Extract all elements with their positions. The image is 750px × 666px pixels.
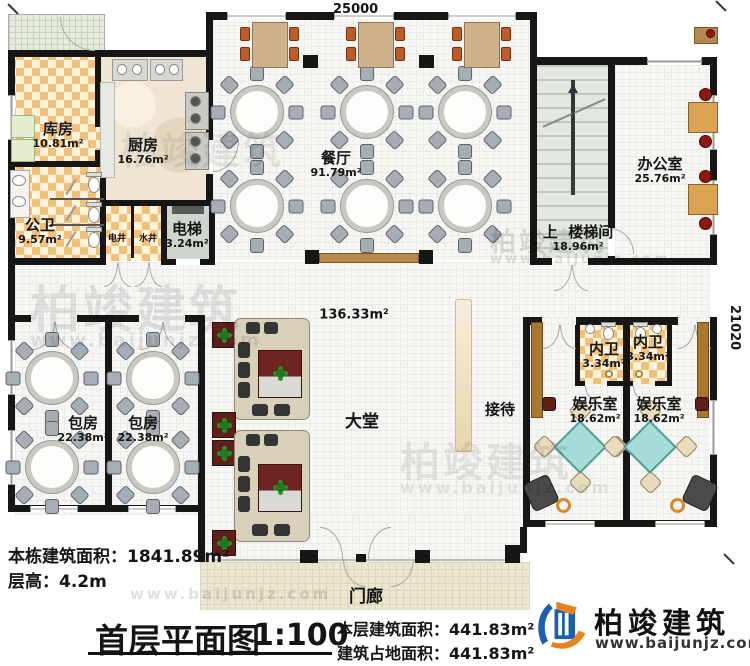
shelf-icon	[11, 139, 35, 162]
wall	[206, 174, 213, 202]
office-chair-icon	[699, 88, 712, 101]
burner-icon	[190, 113, 201, 124]
stat-label: 本层建筑面积：	[337, 620, 449, 639]
column	[419, 55, 434, 68]
room-area: 3.34m²	[626, 351, 669, 364]
wall	[8, 315, 31, 322]
chair-icon	[250, 144, 264, 159]
dimension-value: 21020	[727, 305, 742, 350]
chair-icon	[419, 199, 434, 213]
chair-icon	[395, 27, 405, 41]
room-area: 3.34m²	[582, 358, 625, 371]
dimension-top: 25000	[333, 2, 378, 17]
room-name: 内卫	[582, 341, 625, 358]
room-name: 电井	[108, 234, 126, 244]
title-underline	[88, 652, 332, 655]
round-dining-table	[127, 352, 179, 404]
title-scale: 1:100	[253, 618, 349, 653]
sofa-cushion	[252, 404, 268, 416]
sink-icon	[12, 196, 26, 207]
stats-building-total: 本栋建筑面积：1841.89m²	[8, 542, 230, 567]
brand-url: www.baijunjz.com	[595, 634, 750, 652]
stair-up-arrow	[572, 92, 574, 152]
stat-label: 建筑占地面积：	[337, 644, 449, 663]
toilet-icon	[603, 327, 614, 340]
brand-logo-icon	[534, 598, 590, 654]
round-dining-table	[231, 180, 283, 232]
elevator-opening	[176, 259, 200, 265]
kitchen-counter	[100, 82, 115, 178]
plant-icon	[220, 421, 229, 430]
room-name: 娱乐室	[569, 396, 620, 413]
room-label-lobby: 大堂	[345, 413, 379, 433]
sofa-cushion	[238, 382, 250, 398]
room-area: 18.62m²	[569, 413, 620, 426]
room-area: 9.57m²	[18, 234, 61, 247]
chair-icon	[240, 27, 250, 41]
chair-icon	[211, 105, 226, 119]
room-label-stairwell: 上 楼梯间 18.96m²	[543, 224, 613, 254]
chair-icon	[399, 199, 414, 213]
stats-floor-area: 本层建筑面积：441.83m²	[337, 616, 534, 640]
room-label-storage: 库房 10.81m²	[32, 121, 83, 151]
rect-table	[358, 22, 394, 68]
stat-label: 本栋建筑面积：	[8, 547, 127, 567]
dimension-tick	[715, 0, 726, 11]
sofa-cushion	[264, 322, 278, 334]
stat-value: 441.83m²	[449, 644, 534, 663]
wall	[100, 167, 106, 265]
room-label-electric-shaft: 电井	[108, 234, 126, 244]
window	[647, 58, 702, 65]
stat-value: 441.83m²	[449, 620, 534, 639]
sofa-cushion	[238, 496, 250, 512]
chair-icon	[289, 105, 304, 119]
wall	[520, 527, 527, 553]
room-label-water-shaft: 水井	[139, 234, 157, 244]
floor-lamp-icon	[670, 498, 685, 513]
stair-up-label: 上	[543, 223, 558, 241]
chair-icon	[45, 499, 59, 514]
room-area: 91.79m²	[310, 167, 361, 180]
window	[545, 521, 595, 527]
column	[303, 55, 318, 68]
room-area: 22.38m²	[117, 432, 168, 445]
chair-icon	[289, 27, 299, 41]
plant-icon	[220, 331, 229, 340]
room-name: 包房	[57, 415, 108, 432]
dimension-value: 25000	[333, 2, 378, 17]
chair-icon	[458, 144, 472, 159]
round-dining-table	[26, 352, 78, 404]
office-chair-icon	[699, 170, 712, 183]
toilet-icon	[88, 207, 100, 223]
wall	[286, 12, 334, 20]
wall	[77, 315, 139, 322]
room-label-inner-wc-2: 内卫 3.34m²	[626, 334, 669, 364]
chair-icon	[45, 332, 59, 347]
room-label-kitchen: 厨房 16.76m²	[117, 137, 168, 167]
wall	[575, 381, 585, 386]
plant-icon	[276, 483, 285, 492]
wall	[8, 50, 213, 57]
round-dining-table	[127, 441, 179, 493]
sofa-cushion	[274, 524, 290, 536]
room-name: 公卫	[18, 217, 61, 234]
chair-icon	[399, 105, 414, 119]
floor-lamp-icon	[556, 498, 571, 513]
room-label-private-2: 包房 22.38m²	[117, 415, 168, 445]
round-dining-table	[439, 86, 491, 138]
toilet-icon	[88, 232, 100, 248]
round-dining-table	[341, 86, 393, 138]
room-area: 18.96m²	[543, 241, 613, 254]
sink-icon	[12, 175, 26, 186]
office-chair-icon	[706, 29, 715, 38]
column	[300, 550, 318, 563]
room-label-reception: 接待	[485, 401, 515, 418]
office-chair-icon	[699, 135, 712, 148]
room-area: 25.76m²	[634, 173, 685, 186]
chair-icon	[185, 371, 200, 385]
sofa-cushion	[246, 434, 260, 446]
stall-divider	[50, 198, 104, 200]
room-label-inner-wc-1: 内卫 3.34m²	[582, 341, 625, 371]
column	[415, 550, 430, 563]
chair-icon	[250, 160, 264, 175]
room-area: 3.24m²	[165, 238, 208, 251]
round-dining-table	[439, 180, 491, 232]
burner-icon	[190, 96, 201, 107]
wall	[213, 12, 227, 20]
brand-url-text: www.baijunjz.com	[595, 634, 750, 652]
wall	[608, 65, 615, 228]
chair-icon	[84, 371, 99, 385]
chair-icon	[360, 238, 374, 253]
room-name: 包房	[117, 415, 168, 432]
chair-icon	[321, 105, 336, 119]
room-label-porch: 门廊	[349, 588, 383, 608]
window	[8, 340, 15, 395]
shelf-icon	[11, 115, 35, 138]
chair-icon	[107, 371, 122, 385]
room-label-dining: 餐厅 91.79m²	[310, 150, 361, 180]
wall	[8, 258, 104, 265]
room-label-entertainment-2: 娱乐室 18.62m²	[633, 396, 684, 426]
room-name: 大堂	[345, 412, 379, 432]
sofa-cushion	[246, 322, 260, 334]
chair-icon	[185, 460, 200, 474]
window	[227, 13, 286, 19]
side-table	[542, 397, 556, 411]
plant-icon	[220, 449, 229, 458]
room-name: 内卫	[626, 334, 669, 351]
wall	[516, 12, 530, 20]
window	[448, 13, 516, 19]
chair-icon	[346, 27, 356, 41]
sofa-cushion	[264, 434, 278, 446]
room-name: 厨房	[117, 137, 168, 154]
chair-icon	[395, 47, 405, 61]
chair-icon	[458, 238, 472, 253]
window	[655, 521, 705, 527]
rect-table	[464, 22, 500, 68]
chair-icon	[497, 199, 512, 213]
chair-icon	[458, 160, 472, 175]
window	[8, 430, 15, 485]
column	[419, 250, 433, 264]
chair-icon	[289, 47, 299, 61]
wall	[131, 206, 134, 258]
chair-icon	[346, 47, 356, 61]
chair-icon	[321, 199, 336, 213]
stair-up-arrowhead	[568, 84, 578, 93]
scale-text: 1:100	[253, 618, 349, 653]
office-chair-icon	[699, 217, 712, 230]
dimension-tick	[7, 3, 18, 14]
door-knob-icon	[605, 370, 613, 378]
column	[305, 250, 319, 264]
stats-floor-height: 层高：4.2m	[8, 567, 107, 592]
sink-icon	[117, 64, 127, 75]
room-name: 水井	[139, 234, 157, 244]
desk	[688, 102, 718, 133]
chair-icon	[501, 47, 511, 61]
room-area: 16.76m²	[117, 154, 168, 167]
stat-label: 层高：	[8, 572, 59, 592]
room-area: 10.81m²	[32, 138, 83, 151]
room-label-office: 办公室 25.76m²	[634, 156, 685, 186]
room-area: 136.33m²	[319, 308, 388, 323]
floor-plan-page: { "dimensions": { "top": "25000", "right…	[0, 0, 750, 666]
stat-value: 4.2m	[59, 572, 107, 592]
sofa-cushion	[238, 456, 250, 472]
brand-logo: 柏竣建筑 www.baijunjz.com	[534, 598, 744, 656]
chair-icon	[289, 199, 304, 213]
stats-footprint: 建筑占地面积：441.83m²	[337, 640, 534, 664]
dimension-right: 21020	[727, 305, 742, 350]
burner-icon	[190, 136, 201, 147]
chair-icon	[211, 199, 226, 213]
round-dining-table	[231, 86, 283, 138]
wall	[198, 315, 205, 512]
elevator-door-track	[172, 206, 204, 214]
room-name: 接待	[485, 400, 515, 418]
chair-icon	[146, 332, 160, 347]
room-name: 电梯	[165, 221, 208, 238]
sofa-cushion	[238, 476, 250, 492]
chair-icon	[419, 105, 434, 119]
rect-table	[252, 22, 288, 68]
plant-icon	[276, 369, 285, 378]
chair-icon	[6, 460, 21, 474]
room-name: 餐厅	[310, 150, 361, 167]
sink-icon	[155, 64, 165, 75]
wall	[588, 258, 717, 265]
sink-icon	[585, 324, 595, 334]
room-name: 门廊	[349, 587, 383, 607]
stat-value: 1841.89m²	[127, 547, 230, 567]
room-area: 22.38m²	[57, 432, 108, 445]
desk	[688, 184, 718, 215]
chair-icon	[84, 460, 99, 474]
wall	[105, 322, 112, 505]
chair-icon	[501, 27, 511, 41]
sink-icon	[169, 64, 179, 75]
chair-icon	[360, 160, 374, 175]
toilet-icon	[88, 177, 100, 193]
sofa-cushion	[238, 362, 250, 378]
sofa-cushion	[252, 524, 268, 536]
room-label-elevator: 电梯 3.24m²	[165, 221, 208, 251]
sofa-cushion	[274, 404, 290, 416]
chair-icon	[6, 371, 21, 385]
chair-icon	[452, 47, 462, 61]
chair-icon	[240, 47, 250, 61]
chair-icon	[360, 144, 374, 159]
room-name: 楼梯间	[568, 223, 613, 241]
lobby-area-label: 136.33m²	[319, 309, 388, 324]
round-dining-table	[26, 441, 78, 493]
burner-icon	[190, 153, 201, 164]
sofa-cushion	[238, 342, 250, 358]
side-table	[695, 397, 709, 411]
round-dining-table	[341, 180, 393, 232]
chair-icon	[497, 105, 512, 119]
room-area: 18.62m²	[633, 413, 684, 426]
wall	[530, 258, 552, 265]
room-label-public-wc: 公卫 9.57m²	[18, 217, 61, 247]
wall	[655, 381, 672, 386]
chair-icon	[452, 27, 462, 41]
wall	[394, 12, 448, 20]
chair-icon	[146, 499, 160, 514]
room-name: 库房	[32, 121, 83, 138]
sink-icon	[132, 64, 142, 75]
room-label-entertainment-1: 娱乐室 18.62m²	[569, 396, 620, 426]
dimension-tick	[723, 553, 734, 564]
wall	[530, 12, 537, 265]
room-label-private-1: 包房 22.38m²	[57, 415, 108, 445]
wall	[530, 57, 647, 65]
door-knob-icon	[635, 370, 643, 378]
chair-icon	[250, 238, 264, 253]
room-name: 娱乐室	[633, 396, 684, 413]
chair-icon	[107, 460, 122, 474]
lobby-counter	[319, 253, 419, 263]
window	[710, 400, 717, 455]
reception-desk	[455, 299, 472, 452]
wall	[607, 381, 633, 386]
room-name: 办公室	[634, 156, 685, 173]
